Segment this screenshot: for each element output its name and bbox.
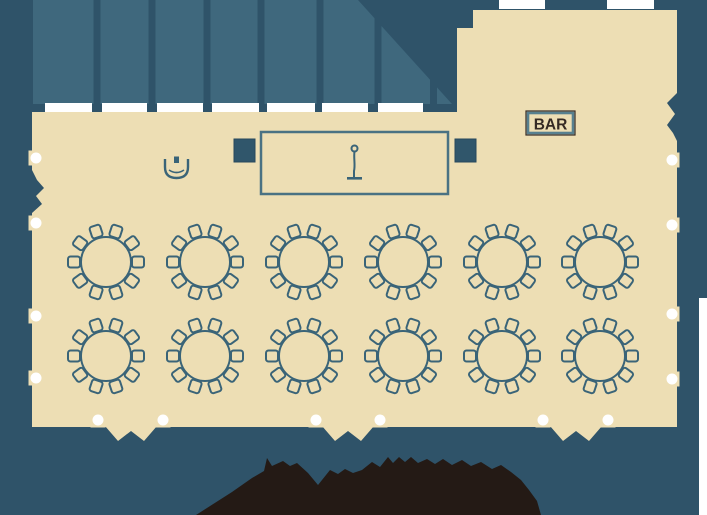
table-top: [378, 331, 428, 381]
window: [267, 103, 315, 112]
window: [157, 103, 203, 112]
table-top: [81, 237, 131, 287]
bar-sign-label: BAR: [534, 117, 568, 134]
terrace-separator: [317, 0, 324, 104]
chair: [429, 257, 441, 268]
table-top: [279, 237, 329, 287]
speaker-right: [455, 139, 476, 162]
floor-plan-canvas: BAR: [0, 0, 707, 515]
door-marker: [375, 415, 386, 426]
window: [607, 0, 654, 9]
chair: [528, 351, 540, 362]
chair: [231, 351, 243, 362]
chair: [365, 257, 377, 268]
table-top: [81, 331, 131, 381]
window: [322, 103, 368, 112]
terrace-separator: [375, 0, 382, 104]
chair: [266, 257, 278, 268]
chair: [464, 257, 476, 268]
bar-sign: BAR: [526, 111, 575, 135]
window: [212, 103, 259, 112]
window: [45, 103, 92, 112]
window: [378, 103, 423, 112]
door-marker: [667, 374, 678, 385]
terrace-separator: [204, 0, 211, 104]
door-marker: [311, 415, 322, 426]
chair: [231, 257, 243, 268]
chair: [330, 351, 342, 362]
door-marker: [538, 415, 549, 426]
table-top: [477, 237, 527, 287]
table-top: [575, 331, 625, 381]
table-top: [477, 331, 527, 381]
chair: [68, 351, 80, 362]
door-marker: [158, 415, 169, 426]
door-marker: [667, 155, 678, 166]
window: [499, 0, 545, 9]
chair: [562, 257, 574, 268]
door-marker: [667, 309, 678, 320]
chair: [464, 351, 476, 362]
terrace-separator: [430, 0, 437, 104]
table-top: [180, 331, 230, 381]
door-marker: [31, 311, 42, 322]
door-marker: [93, 415, 104, 426]
chair: [266, 351, 278, 362]
table-top: [575, 237, 625, 287]
door-marker: [603, 415, 614, 426]
chair: [429, 351, 441, 362]
chair: [365, 351, 377, 362]
chair: [68, 257, 80, 268]
chair: [167, 257, 179, 268]
chair: [626, 351, 638, 362]
speaker-left: [234, 139, 255, 162]
terrace-separator: [258, 0, 265, 104]
chair: [132, 257, 144, 268]
door-marker: [31, 373, 42, 384]
door-marker: [667, 220, 678, 231]
chair: [562, 351, 574, 362]
chair: [167, 351, 179, 362]
chair: [626, 257, 638, 268]
window: [102, 103, 147, 112]
door-marker: [31, 153, 42, 164]
chair: [528, 257, 540, 268]
table-top: [180, 237, 230, 287]
table-top: [279, 331, 329, 381]
terrace-separator: [94, 0, 101, 104]
chair: [330, 257, 342, 268]
right-edge-panel: [699, 298, 707, 515]
chair: [132, 351, 144, 362]
terrace-separator: [149, 0, 156, 104]
table-top: [378, 237, 428, 287]
door-marker: [31, 218, 42, 229]
